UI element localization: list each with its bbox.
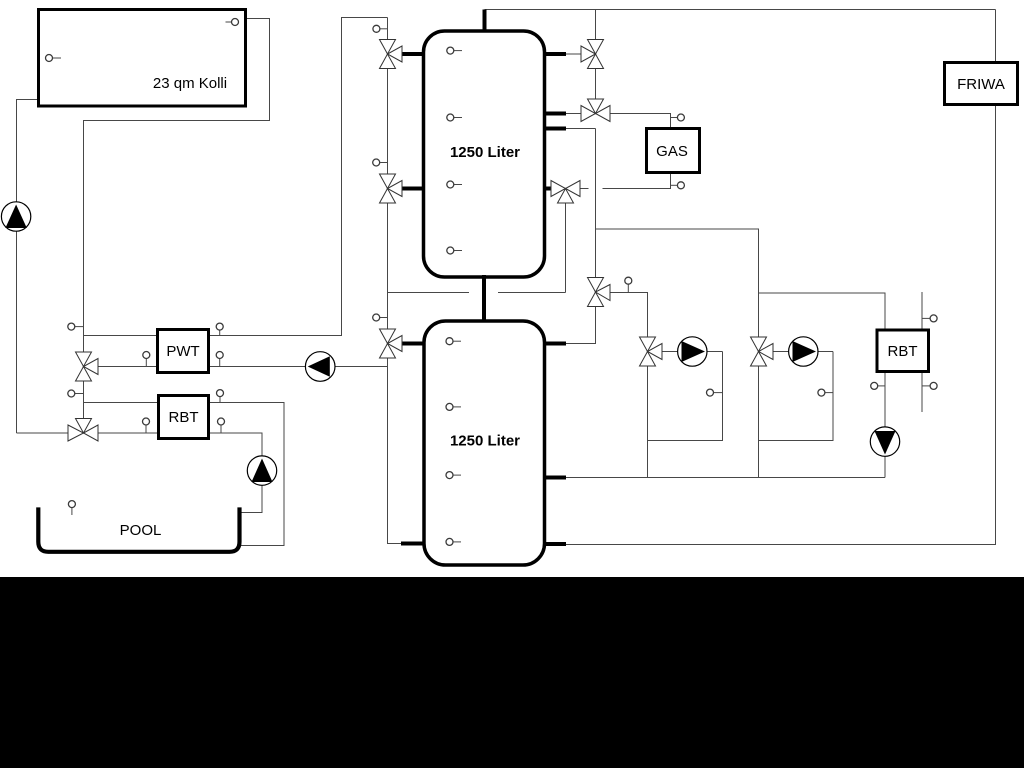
- svg-text:RBT: RBT: [169, 409, 199, 426]
- svg-text:23 qm Kolli: 23 qm Kolli: [153, 75, 227, 92]
- svg-text:1250 Liter: 1250 Liter: [450, 433, 520, 450]
- svg-text:GAS: GAS: [656, 143, 688, 160]
- svg-text:POOL: POOL: [120, 522, 162, 539]
- svg-text:FRIWA: FRIWA: [957, 76, 1005, 93]
- svg-text:RBT: RBT: [888, 343, 918, 360]
- svg-text:1250 Liter: 1250 Liter: [450, 144, 520, 161]
- svg-text:PWT: PWT: [166, 343, 199, 360]
